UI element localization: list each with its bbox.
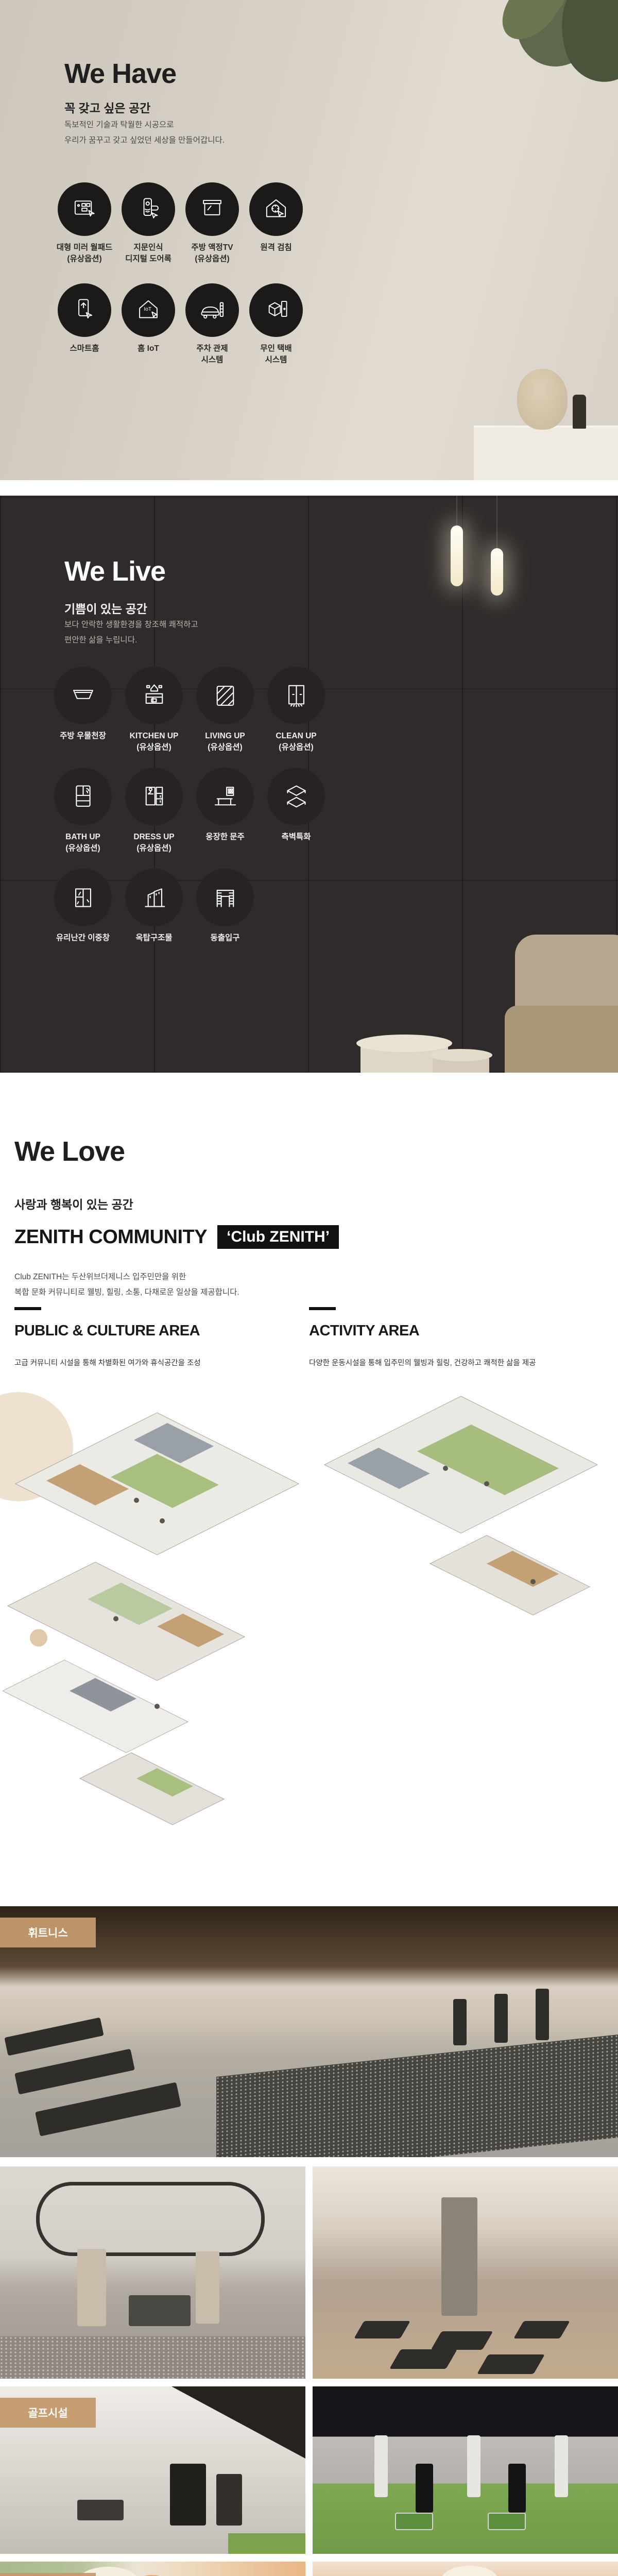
icon-label: 측벽특화 bbox=[281, 832, 311, 843]
pendant-light-icon bbox=[491, 548, 503, 596]
bath-up-item: BATH UP (유상옵션) bbox=[54, 768, 112, 854]
club-zenith-badge: ‘Club ZENITH’ bbox=[217, 1225, 339, 1249]
column-accent-bar bbox=[14, 1307, 41, 1310]
smart-home-icon bbox=[58, 283, 111, 337]
kitchen-up-icon bbox=[125, 667, 183, 724]
we-love-subtitle: 사랑과 행복이 있는 공간 bbox=[14, 1199, 133, 1211]
icon-label: CLEAN UP (유상옵션) bbox=[276, 731, 316, 753]
glass-railing-item: 유리난간 이중창 bbox=[54, 869, 112, 944]
activity-description: 다양한 운동시설을 통해 입주민의 웰빙과 힐링, 건강하고 쾌적한 삶을 제공 bbox=[309, 1357, 608, 1368]
we-have-description: 독보적인 기술과 탁월한 시공으로우리가 꿈꾸고 갖고 싶었던 세상을 만들어갑… bbox=[64, 117, 225, 148]
section-we-love: We Love 사랑과 행복이 있는 공간 ZENITH COMMUNITY ‘… bbox=[0, 1073, 618, 1906]
clean-up-icon bbox=[267, 667, 325, 724]
section-we-have: We Have 꼭 갖고 싶은 공간 독보적인 기술과 탁월한 시공으로우리가 … bbox=[0, 0, 618, 480]
floorplan-public-culture bbox=[3, 1392, 309, 1871]
kitchen-ceiling-item: 주방 우물천장 bbox=[54, 667, 112, 753]
parcel-system-item: 무인 택배 시스템 bbox=[249, 283, 303, 366]
vase-decoration bbox=[517, 369, 568, 430]
kitchen-tv-item: 주방 액정TV (유상옵션) bbox=[185, 182, 239, 265]
smart-home-item: 스마트홈 bbox=[58, 283, 111, 366]
side-wall-item: 측벽특화 bbox=[267, 768, 325, 854]
fingerprint-doorlock-icon bbox=[122, 182, 175, 236]
parking-control-item: 주차 관제 시스템 bbox=[185, 283, 239, 366]
rooftop-structure-item: 옥탑구조물 bbox=[125, 869, 183, 944]
dress-up-item: DRESS UP (유상옵션) bbox=[125, 768, 183, 854]
icon-label: LIVING UP (유상옵션) bbox=[205, 731, 245, 753]
side-wall-icon bbox=[267, 768, 325, 825]
icon-label: 무인 택배 시스템 bbox=[260, 343, 291, 366]
icon-label: 주차 관제 시스템 bbox=[196, 343, 228, 366]
glass-railing-icon bbox=[54, 869, 112, 926]
icon-label: 대형 미러 월패드 (유상옵션) bbox=[57, 242, 112, 265]
armchair-decoration bbox=[515, 935, 618, 1012]
bath-up-icon bbox=[54, 768, 112, 825]
icon-label: KITCHEN UP (유상옵션) bbox=[130, 731, 179, 753]
gate-pillar-item: 웅장한 문주 bbox=[196, 768, 254, 854]
pendant-cord bbox=[456, 496, 457, 526]
activity-column: ACTIVITY AREA 다양한 운동시설을 통해 입주민의 웰빙과 힐링, … bbox=[309, 1307, 608, 1368]
remote-metering-icon bbox=[249, 182, 303, 236]
we-live-title: We Live bbox=[64, 557, 165, 585]
remote-metering-item: 원격 검침 bbox=[249, 182, 303, 265]
icon-label: 주방 액정TV (유상옵션) bbox=[191, 242, 233, 265]
home-iot-item: IoT홈 IoT bbox=[122, 283, 175, 366]
we-love-title: We Love bbox=[14, 1138, 125, 1165]
table-decoration bbox=[474, 426, 618, 480]
we-live-subtitle: 기쁨이 있는 공간 bbox=[64, 603, 147, 615]
icon-label: 웅장한 문주 bbox=[205, 832, 245, 843]
public-culture-column: PUBLIC & CULTURE AREA 고급 커뮤니티 시설을 통해 차별화… bbox=[14, 1307, 303, 1368]
parking-control-icon bbox=[185, 283, 239, 337]
column-accent-bar bbox=[309, 1307, 336, 1310]
zenith-community-row: ZENITH COMMUNITY ‘Club ZENITH’ bbox=[14, 1225, 339, 1249]
floorplan-activity bbox=[317, 1381, 613, 1700]
rooftop-structure-icon bbox=[125, 869, 183, 926]
photo-kids-cafe: 키즈카페 bbox=[0, 2562, 305, 2576]
fingerprint-doorlock-item: 지문인식 디지털 도어록 bbox=[122, 182, 175, 265]
icon-label: 홈 IoT bbox=[138, 343, 159, 354]
mirror-wallpad-icon bbox=[58, 182, 111, 236]
fitness-photo-badge: 휘트니스 bbox=[0, 1918, 96, 1947]
we-have-title: We Have bbox=[64, 60, 176, 88]
icon-label: 스마트홈 bbox=[70, 343, 99, 354]
activity-title: ACTIVITY AREA bbox=[309, 1323, 608, 1340]
photo-gx-room bbox=[313, 2166, 618, 2379]
icon-label: 원격 검침 bbox=[260, 242, 291, 253]
bottle-decoration bbox=[573, 395, 586, 429]
home-iot-icon: IoT bbox=[122, 283, 175, 337]
section-we-live: We Live 기쁨이 있는 공간 보다 안락한 생활환경을 창조해 쾌적하고편… bbox=[0, 496, 618, 1073]
building-entrance-item: 동출입구 bbox=[196, 869, 254, 944]
gate-pillar-icon bbox=[196, 768, 254, 825]
icon-label: DRESS UP (유상옵션) bbox=[133, 832, 174, 854]
photo-golf-lounge: 골프시설 bbox=[0, 2386, 305, 2554]
icon-label: 동출입구 bbox=[210, 933, 239, 944]
kitchen-ceiling-icon bbox=[54, 667, 112, 724]
icon-label: 유리난간 이중창 bbox=[56, 933, 110, 944]
mirror-wallpad-item: 대형 미러 월패드 (유상옵션) bbox=[57, 182, 112, 265]
dress-up-icon bbox=[125, 768, 183, 825]
golf-photo-badge: 골프시설 bbox=[0, 2398, 96, 2428]
brochure-page: We Have 꼭 갖고 싶은 공간 독보적인 기술과 탁월한 시공으로우리가 … bbox=[0, 0, 618, 2576]
public-culture-title: PUBLIC & CULTURE AREA bbox=[14, 1323, 303, 1340]
photo-kids-ballpit bbox=[313, 2562, 618, 2576]
living-up-item: LIVING UP (유상옵션) bbox=[196, 667, 254, 753]
we-love-description: Club ZENITH는 두산위브더제니스 입주민만을 위한복합 문화 커뮤니티… bbox=[14, 1269, 239, 1300]
zenith-community-heading: ZENITH COMMUNITY bbox=[14, 1226, 207, 1248]
kitchen-tv-icon bbox=[185, 182, 239, 236]
armchair-seat-decoration bbox=[505, 1006, 618, 1073]
icon-label: 지문인식 디지털 도어록 bbox=[125, 242, 171, 265]
public-culture-description: 고급 커뮤니티 시설을 통해 차별화된 여가와 휴식공간을 조성 bbox=[14, 1357, 303, 1368]
clean-up-item: CLEAN UP (유상옵션) bbox=[267, 667, 325, 753]
pendant-light-icon bbox=[451, 526, 463, 586]
icon-label: 옥탑구조물 bbox=[135, 933, 172, 944]
we-live-feature-grid: 주방 우물천장KITCHEN UP (유상옵션)LIVING UP (유상옵션)… bbox=[47, 667, 332, 944]
kitchen-up-item: KITCHEN UP (유상옵션) bbox=[125, 667, 183, 753]
photo-fitness: 휘트니스 bbox=[0, 1906, 618, 2157]
kids-photo-badge: 키즈카페 bbox=[0, 2573, 96, 2576]
section-gallery: 휘트니스 골프시설 bbox=[0, 1906, 618, 2576]
coffee-table-decoration bbox=[433, 1055, 489, 1073]
we-have-feature-grid: 대형 미러 월패드 (유상옵션)지문인식 디지털 도어록주방 액정TV (유상옵… bbox=[53, 182, 308, 366]
icon-label: BATH UP (유상옵션) bbox=[65, 832, 100, 854]
svg-text:IoT: IoT bbox=[144, 307, 152, 312]
pendant-cord bbox=[496, 496, 497, 548]
parcel-system-icon bbox=[249, 283, 303, 337]
icon-label: 주방 우물천장 bbox=[60, 731, 106, 742]
living-up-icon bbox=[196, 667, 254, 724]
photo-gym bbox=[0, 2166, 305, 2379]
photo-screen-golf bbox=[313, 2386, 618, 2554]
building-entrance-icon bbox=[196, 869, 254, 926]
we-live-description: 보다 안락한 생활환경을 창조해 쾌적하고편안한 삶을 누립니다. bbox=[64, 617, 198, 648]
we-have-subtitle: 꼭 갖고 싶은 공간 bbox=[64, 103, 150, 114]
